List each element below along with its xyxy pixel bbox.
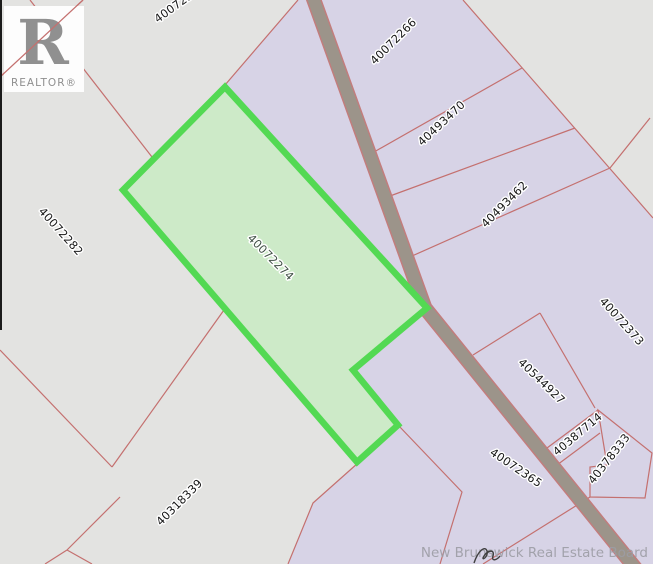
map-svg: 40072266 40493470 40493462 40072373 4007… xyxy=(0,0,653,564)
screen-edge-artifact xyxy=(0,0,2,330)
watermark-text: New Brunswick Real Estate Board xyxy=(421,545,648,561)
realtor-logo: R REALTOR® xyxy=(4,6,84,92)
realtor-logo-r-glyph: R xyxy=(17,6,69,79)
realtor-logo-wordmark: REALTOR® xyxy=(11,77,77,89)
parcel-map-canvas[interactable]: 40072266 40493470 40493462 40072373 4007… xyxy=(0,0,653,564)
